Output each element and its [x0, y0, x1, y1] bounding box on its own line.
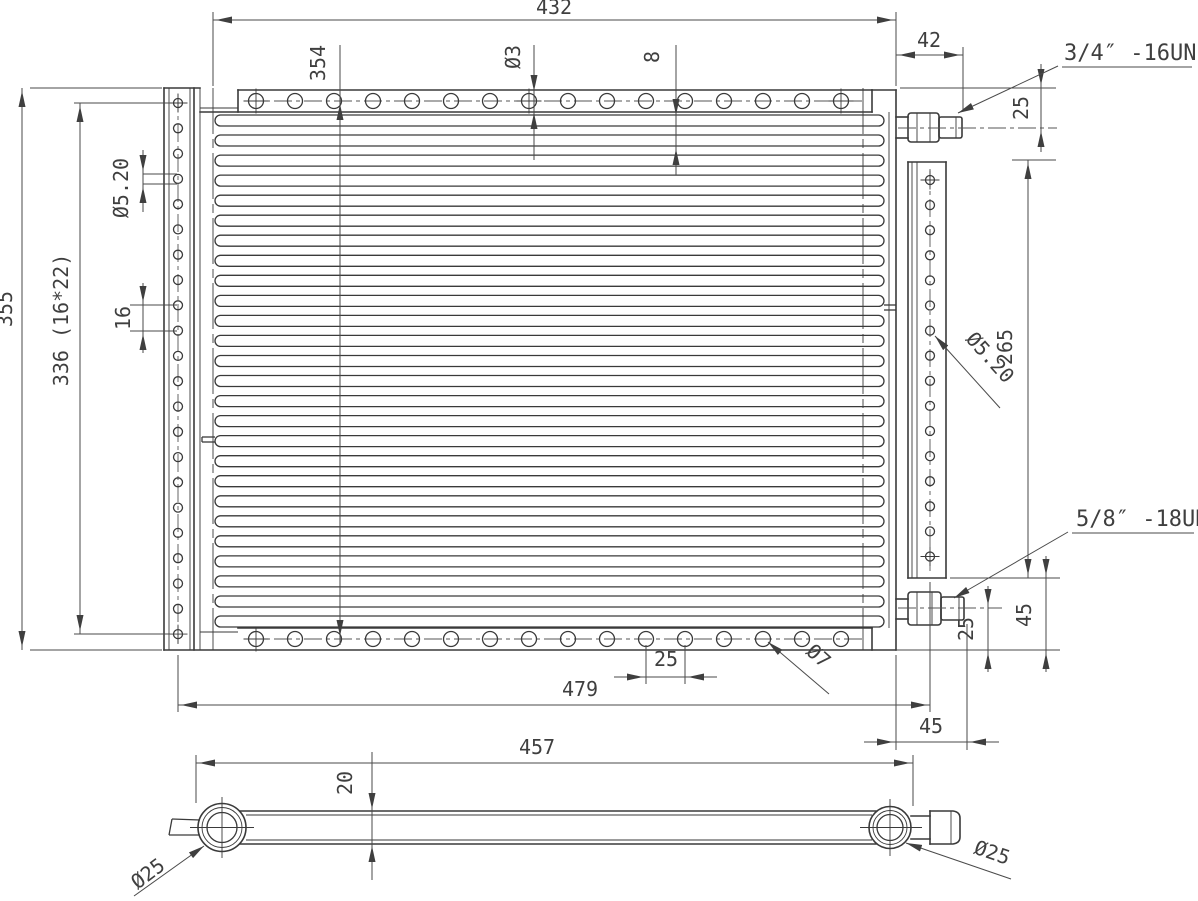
tube-row: [215, 215, 884, 226]
left-tube-end: [169, 797, 254, 858]
dim-side-hole-span: 336 (16*22): [49, 254, 73, 386]
dim-fitting-offset: 42: [917, 28, 941, 52]
dim-side-hole-dia-left: Ø5.20: [109, 158, 133, 218]
tube-row: [215, 516, 884, 527]
dim-overall-width: 432: [536, 0, 572, 19]
tube-row: [215, 496, 884, 507]
tube-row: [215, 576, 884, 587]
tube-row: [215, 255, 884, 266]
label-top-fitting-thread: 3/4″ -16UNF: [1064, 41, 1198, 66]
tube-row: [215, 616, 884, 627]
tube-row: [215, 396, 884, 407]
front-view: [164, 88, 1057, 652]
dim-fitting-height: 45: [1012, 603, 1036, 627]
drawing-page: 432 42 3/4″ -16UNF 25 354 Ø3 8 355 336 (…: [0, 0, 1198, 901]
right-boundary: [872, 90, 896, 650]
tube-row: [215, 335, 884, 346]
tube-row: [215, 155, 884, 166]
dim-bottom-width: 479: [562, 677, 598, 701]
bottom-flange: [164, 627, 896, 652]
dim-overall-height: 355: [0, 291, 17, 327]
tube-side-view: [169, 797, 960, 858]
label-bottom-fitting-thread: 5/8″ -18UNF: [1076, 507, 1198, 532]
tube-row: [215, 235, 884, 246]
tube-row: [215, 536, 884, 547]
tube-row: [215, 416, 884, 427]
tube-row: [215, 195, 884, 206]
dim-fin-gap: 8: [640, 51, 664, 63]
tube-row: [215, 275, 884, 286]
dim-bottom-fitting-center: 25: [954, 617, 978, 641]
dim-flange-hole-pitch: 25: [654, 647, 678, 671]
tube-row: [215, 295, 884, 306]
dim-tube-dia-right: Ø25: [971, 835, 1013, 869]
tube-row: [215, 356, 884, 367]
tube-row: [215, 315, 884, 326]
tube-row: [215, 376, 884, 387]
dim-right-hole-span: 265: [993, 329, 1017, 365]
tube-row: [215, 556, 884, 567]
condenser-technical-drawing: 432 42 3/4″ -16UNF 25 354 Ø3 8 355 336 (…: [0, 0, 1198, 901]
right-stub: [884, 305, 896, 310]
dim-fitting-protrusion: 45: [919, 714, 943, 738]
left-side-plate: [164, 88, 200, 650]
bottom-fitting: [896, 592, 1002, 625]
tube-row: [215, 115, 884, 126]
tube-row: [215, 175, 884, 186]
dim-tube-dia-left: Ø25: [126, 853, 169, 894]
dim-tube-length: 457: [519, 735, 555, 759]
tube-row: [215, 456, 884, 467]
tube-row: [215, 436, 884, 447]
dim-flange-hole-dia: Ø3: [501, 45, 525, 69]
tube-row: [215, 476, 884, 487]
dim-hole-span-vertical: 354: [306, 45, 330, 81]
tube-row: [215, 596, 884, 607]
dim-tube-depth: 20: [333, 771, 357, 795]
dim-side-hole-pitch: 16: [111, 306, 135, 330]
top-flange: [200, 89, 872, 114]
tube-row: [215, 135, 884, 146]
right-tube-end: [860, 799, 960, 856]
dim-top-fitting-center: 25: [1009, 96, 1033, 120]
right-side-plate: [908, 162, 946, 578]
core-tubes: [215, 115, 884, 627]
